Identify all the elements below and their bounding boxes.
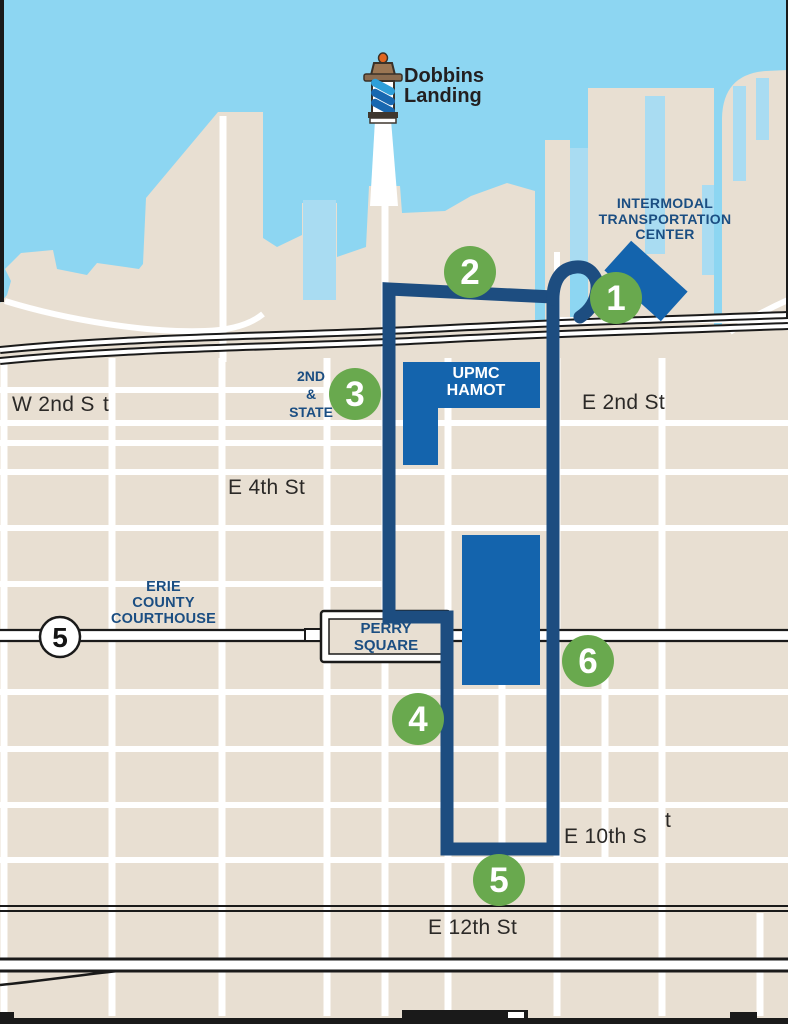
- route-stop-marker-5: 5: [473, 854, 525, 906]
- route-stop-marker-1: 1: [590, 272, 642, 324]
- route-stop-marker-3: 3: [329, 368, 381, 420]
- midtown-building: [462, 535, 540, 685]
- route-stop-marker-4: 4: [392, 693, 444, 745]
- dobbins-landing-label: DobbinsLanding: [404, 66, 484, 106]
- route-stop-marker-2: 2: [444, 246, 496, 298]
- erie-trolley-map: DobbinsLanding INTERMODALTRANSPORTATIONC…: [0, 0, 788, 1024]
- route-stop-marker-6: 6: [562, 635, 614, 687]
- street-label-w2nd: W 2nd S: [12, 393, 95, 417]
- intermodal-center-label: INTERMODALTRANSPORTATIONCENTER: [570, 196, 760, 243]
- street-label-e2nd: E 2nd St: [582, 391, 665, 415]
- street-label-e12th: E 12th St: [428, 916, 517, 940]
- street-label-e10th: E 10th S: [564, 825, 647, 849]
- upmc-hamot-label: UPMCHAMOT: [406, 365, 546, 399]
- street-label-e10th-t: t: [665, 809, 671, 833]
- street-label-w2nd-t: t: [103, 393, 109, 417]
- route5-shield-number: 5: [46, 622, 74, 654]
- map-canvas: [0, 0, 788, 1024]
- courthouse-label: ERIECOUNTYCOURTHOUSE: [86, 579, 241, 627]
- perry-square-label: PERRYSQUARE: [330, 620, 442, 654]
- map-edge-notch: [508, 1012, 524, 1018]
- street-label-e4th: E 4th St: [228, 476, 305, 500]
